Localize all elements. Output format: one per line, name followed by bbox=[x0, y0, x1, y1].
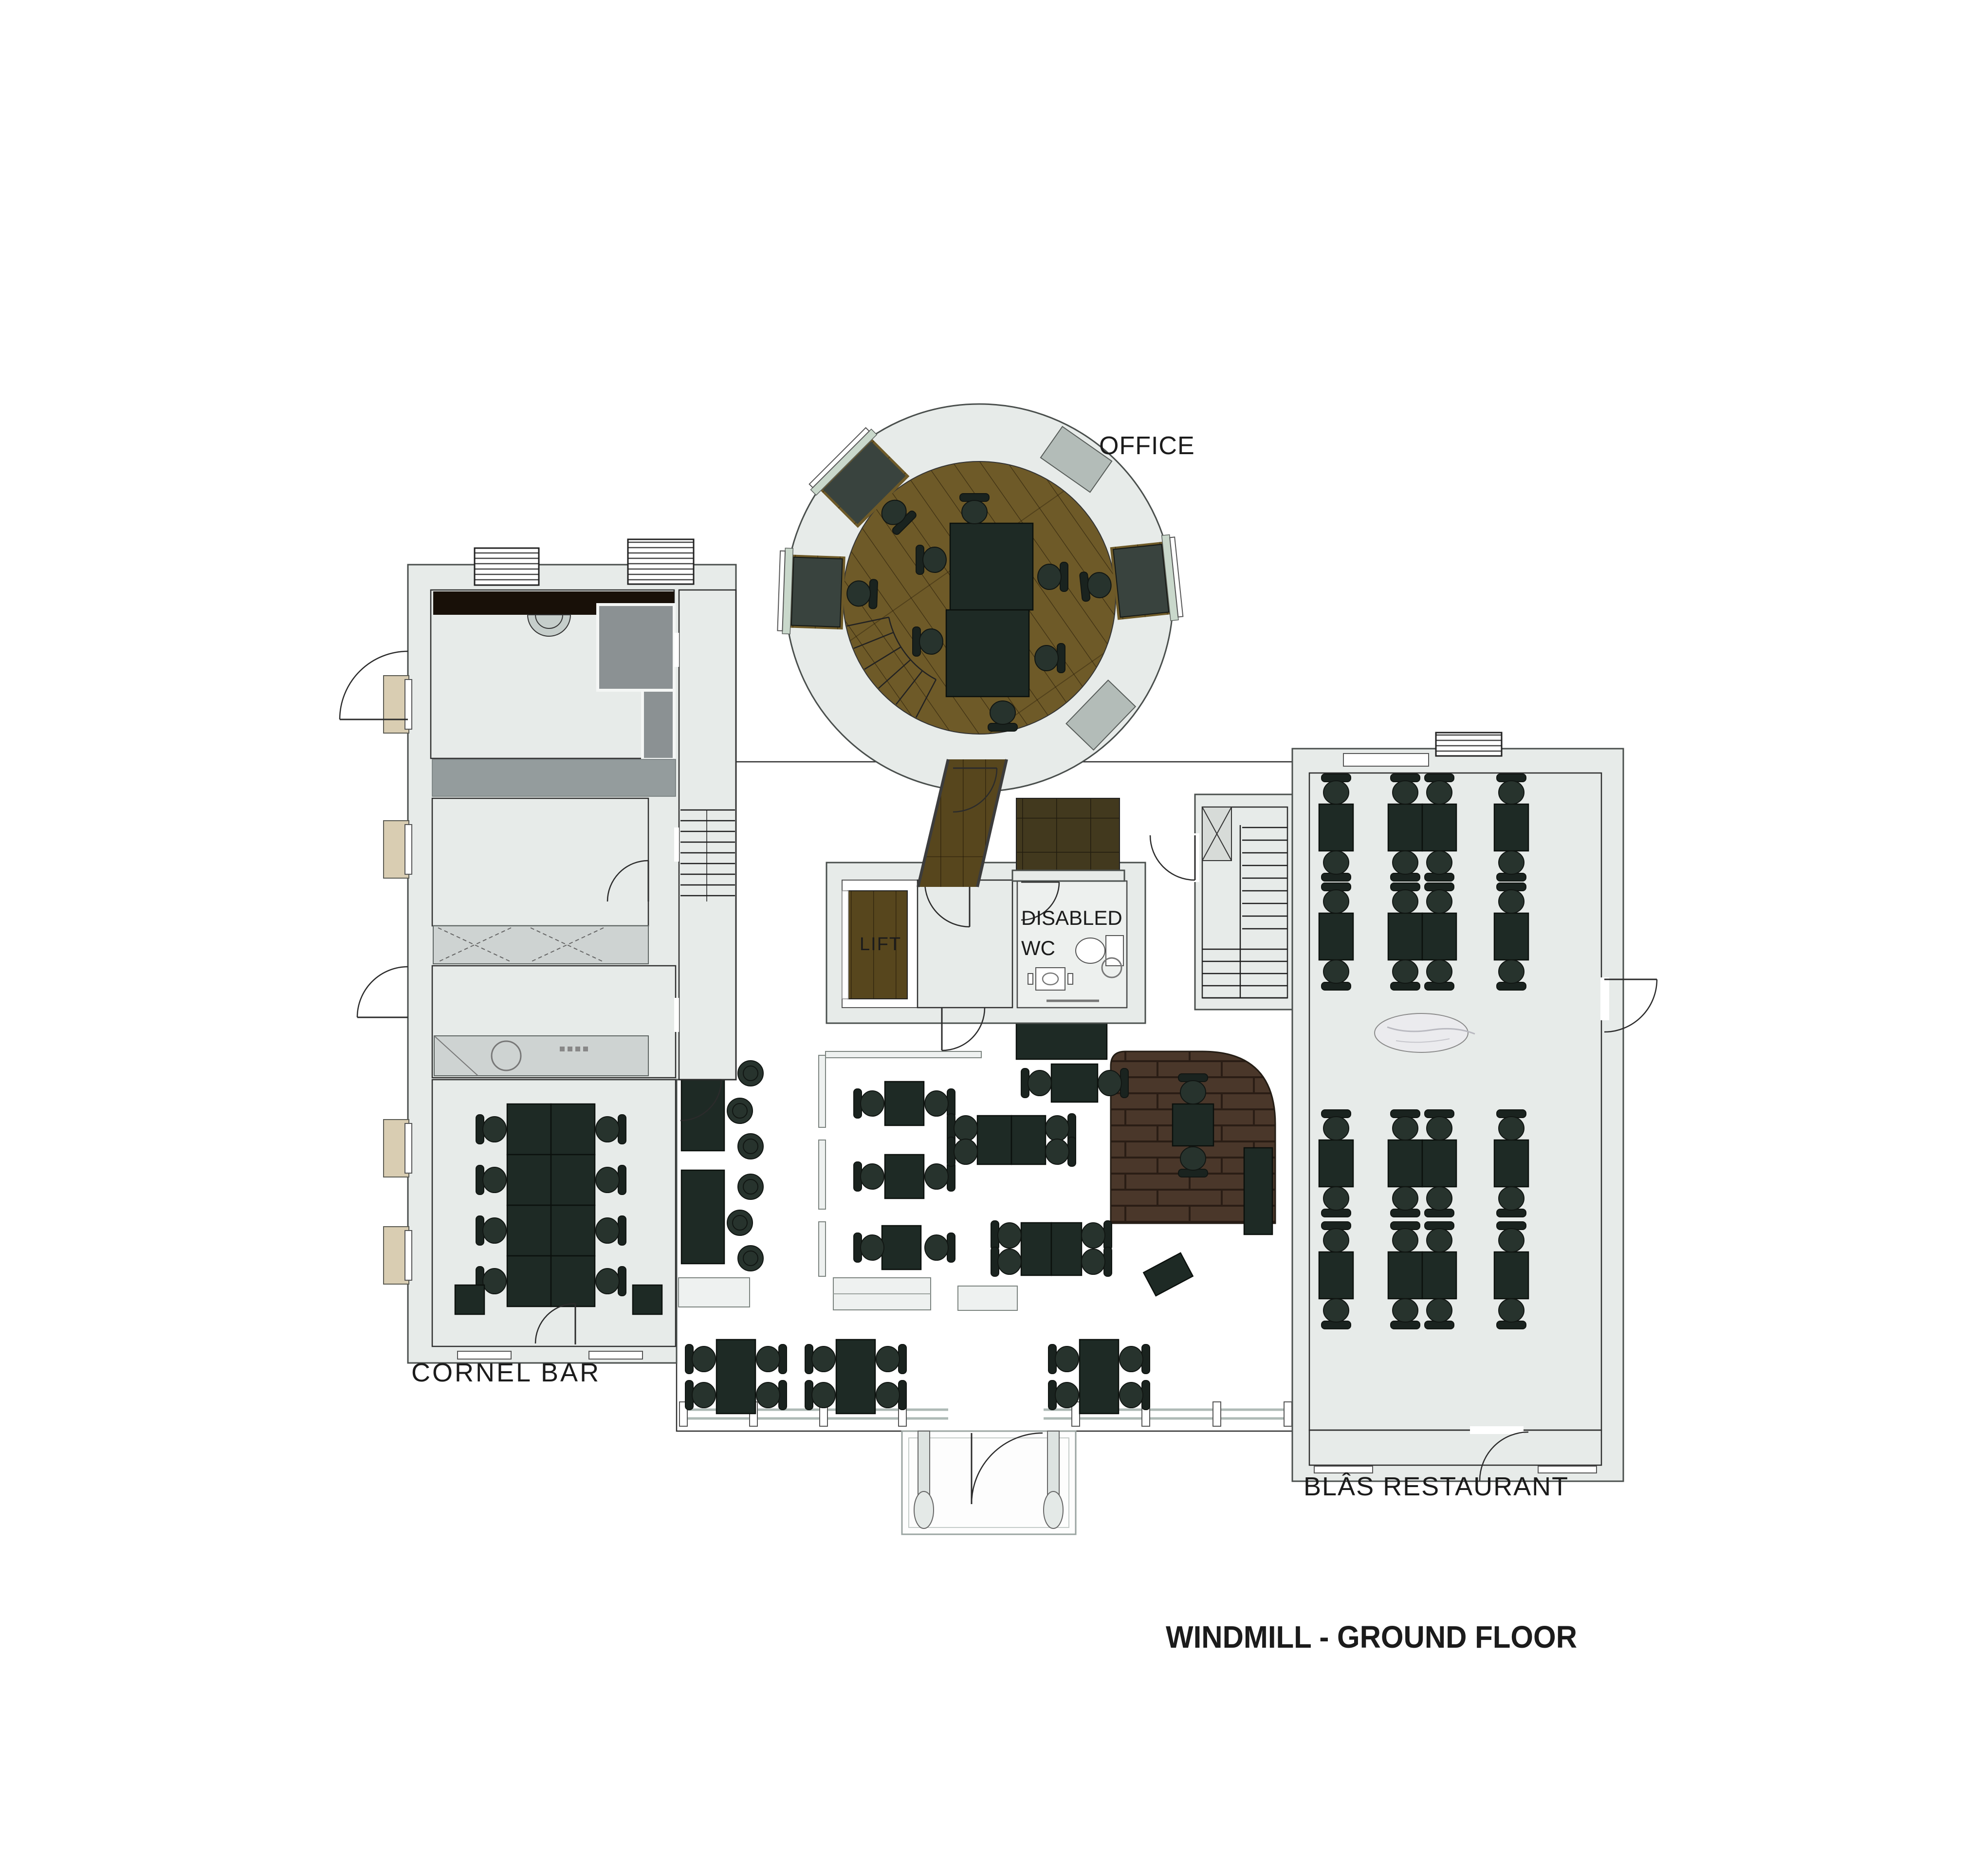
long-table bbox=[507, 1104, 595, 1306]
raised-platform bbox=[1111, 1051, 1275, 1234]
entrance-porch bbox=[902, 1431, 1076, 1534]
store bbox=[598, 605, 674, 690]
blas-restaurant-label: BLÂS RESTAURANT bbox=[1304, 1472, 1569, 1501]
disabled-wc-label-1: DISABLED bbox=[1021, 906, 1122, 929]
vent-grille bbox=[1436, 733, 1502, 756]
drawing-title: WINDMILL - GROUND FLOOR bbox=[1166, 1619, 1577, 1655]
kitchen-counter bbox=[433, 926, 648, 964]
store bbox=[643, 690, 674, 759]
bench bbox=[679, 1278, 750, 1307]
bench bbox=[958, 1286, 1017, 1310]
west-windows bbox=[340, 651, 412, 1284]
window-row-tables bbox=[685, 1340, 1150, 1414]
disabled-wc-room: DISABLED WC bbox=[1017, 881, 1127, 1008]
floor-plan-page: LIFT DISABLED bbox=[0, 0, 1965, 1876]
blas-restaurant-building bbox=[1292, 733, 1657, 1481]
windmill-ground-floor-plan: LIFT DISABLED bbox=[0, 0, 1965, 1876]
vent-grille bbox=[628, 539, 694, 584]
servery-counter bbox=[432, 759, 676, 796]
lift-label: LIFT bbox=[860, 934, 901, 955]
door-gap bbox=[674, 828, 679, 862]
office-label: OFFICE bbox=[1099, 432, 1195, 460]
column-base bbox=[914, 1491, 934, 1528]
wc-lift-block: LIFT DISABLED bbox=[826, 863, 1145, 1050]
vent-grille bbox=[475, 548, 539, 585]
store-room bbox=[1012, 798, 1124, 881]
door-gap bbox=[674, 998, 679, 1032]
platform-console bbox=[1244, 1148, 1272, 1234]
exterior-mask bbox=[737, 763, 912, 860]
stair-hall bbox=[1150, 794, 1295, 1010]
lift-door bbox=[842, 891, 848, 999]
side-table bbox=[633, 1285, 662, 1314]
high-tables bbox=[681, 1057, 763, 1271]
cornel-bar-building bbox=[340, 539, 736, 1363]
cornel-bar-label: CORNEL BAR bbox=[411, 1358, 601, 1387]
entrance-gap bbox=[948, 1405, 1044, 1422]
lift: LIFT bbox=[842, 880, 918, 1008]
column-base bbox=[1044, 1491, 1063, 1528]
side-table bbox=[455, 1285, 484, 1314]
platform-table bbox=[1173, 1104, 1213, 1146]
tilted-table bbox=[1143, 1253, 1193, 1296]
window-sill bbox=[1343, 754, 1429, 766]
disabled-wc-label-2: WC bbox=[1021, 937, 1055, 959]
appliance-counter bbox=[434, 1036, 648, 1076]
partitions-and-benches bbox=[679, 1051, 1017, 1310]
two-seat-tables bbox=[854, 1082, 955, 1269]
door-gap bbox=[674, 633, 679, 667]
console-table bbox=[1016, 1022, 1107, 1059]
